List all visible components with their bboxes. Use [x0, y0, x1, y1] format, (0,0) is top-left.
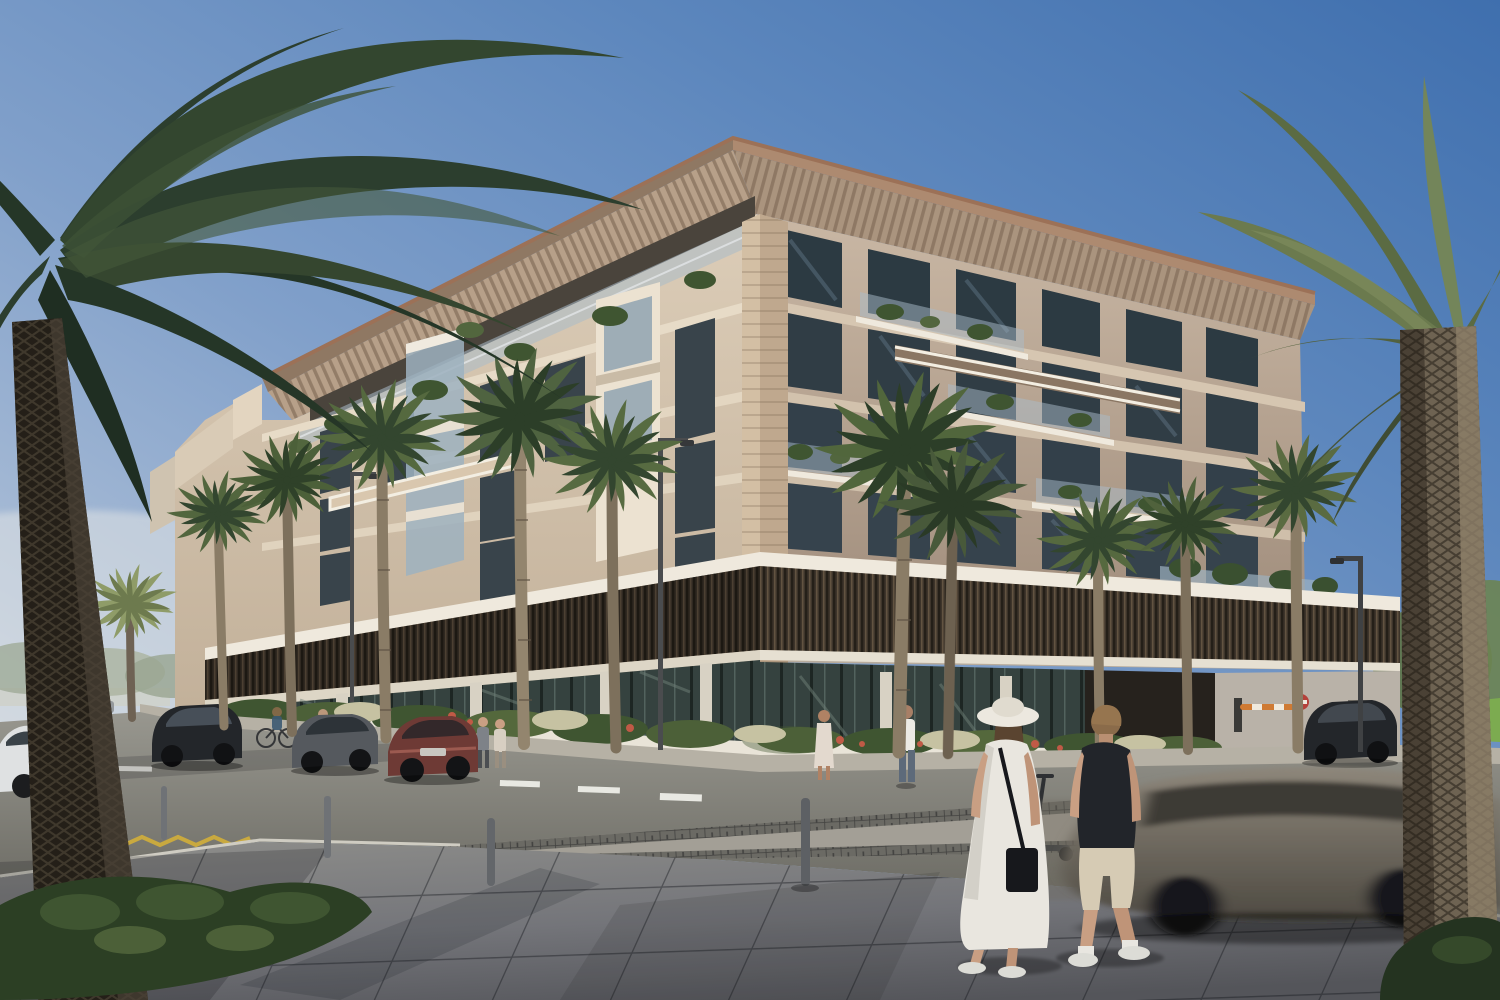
architectural-render [0, 0, 1500, 1000]
parked-sedan-gray [291, 714, 379, 776]
black-polo [1077, 742, 1136, 848]
crossbody-bag [1006, 848, 1038, 892]
ankle [1006, 948, 1018, 968]
sneaker [1118, 946, 1150, 960]
scene-canvas [0, 0, 1500, 1000]
sneaker [958, 962, 986, 974]
sneaker [1068, 953, 1098, 967]
parked-suv-right [1302, 700, 1398, 768]
sneaker [998, 966, 1026, 978]
license-plate [420, 748, 446, 756]
